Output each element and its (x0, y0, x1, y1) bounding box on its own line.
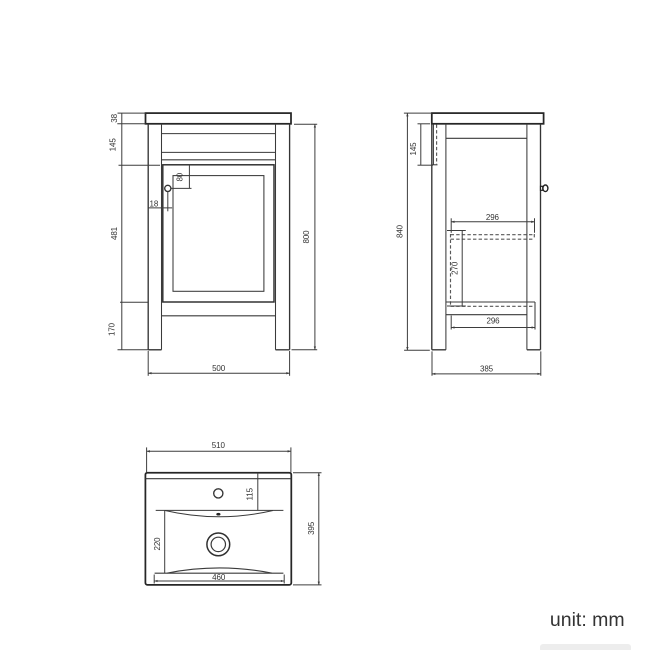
svg-text:840: 840 (395, 224, 404, 238)
svg-text:18: 18 (150, 200, 159, 209)
svg-text:296: 296 (486, 213, 500, 222)
svg-text:145: 145 (409, 142, 418, 156)
svg-text:510: 510 (212, 441, 226, 450)
svg-text:115: 115 (245, 487, 254, 500)
svg-text:500: 500 (212, 364, 226, 373)
svg-text:296: 296 (486, 316, 500, 325)
svg-text:170: 170 (108, 322, 117, 336)
svg-text:38: 38 (110, 113, 119, 122)
svg-text:481: 481 (110, 226, 119, 240)
svg-text:460: 460 (212, 573, 226, 582)
svg-text:270: 270 (451, 261, 460, 275)
svg-text:395: 395 (307, 521, 316, 535)
svg-text:80: 80 (175, 172, 184, 181)
svg-text:145: 145 (109, 138, 118, 152)
svg-text:385: 385 (480, 365, 494, 374)
svg-text:220: 220 (153, 537, 162, 551)
svg-text:800: 800 (302, 230, 311, 244)
svg-text:unit: mm: unit: mm (550, 609, 625, 631)
